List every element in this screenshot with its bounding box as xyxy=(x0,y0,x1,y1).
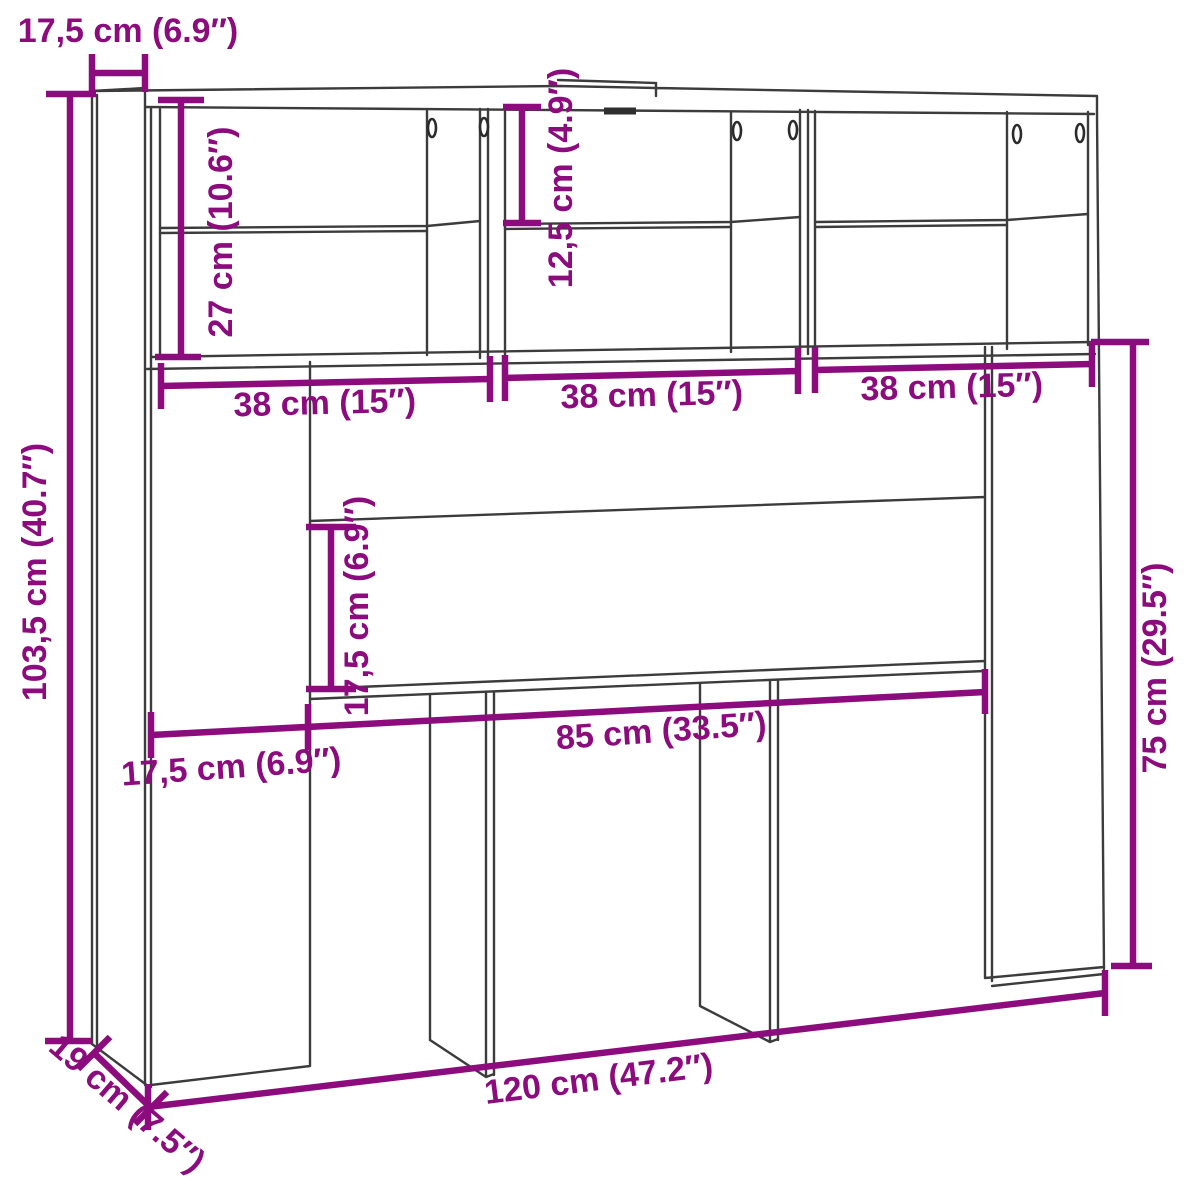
label-top-depth: 17,5 cm (6.9″) xyxy=(18,12,238,50)
label-shelf-spacing: 12,5 cm (4.9″) xyxy=(542,68,580,288)
screw-icon xyxy=(480,118,488,136)
right-outer-edge xyxy=(1097,114,1104,969)
screw-icon xyxy=(789,121,797,139)
left-side-panel xyxy=(92,88,151,1087)
compartment-shelves xyxy=(160,214,1088,233)
dim-line-total-width xyxy=(148,970,1105,1130)
label-total-height: 103,5 cm (40.7″) xyxy=(16,443,54,701)
screw-icon xyxy=(1076,124,1084,142)
screw-icon xyxy=(733,122,741,140)
screw-icon xyxy=(1013,125,1021,143)
label-compartment-width-left: 38 cm (15″) xyxy=(233,382,417,425)
diagram-svg: 17,5 cm (6.9″) 27 cm (10.6″) 12,5 cm (4.… xyxy=(0,0,1200,1200)
cabinet-outline xyxy=(92,80,1104,1087)
screw-icon xyxy=(428,119,436,137)
dim-line-shelf-spacing xyxy=(503,107,541,223)
label-lower-height: 75 cm (29.5″) xyxy=(1136,563,1174,774)
label-compartment-width-right: 38 cm (15″) xyxy=(860,366,1044,409)
hutch-dividers xyxy=(160,109,1088,358)
top-board xyxy=(92,80,1097,114)
label-compartment-width-middle: 38 cm (15″) xyxy=(560,374,744,417)
screw-hole-icons xyxy=(428,118,1084,143)
label-compartment-height: 27 cm (10.6″) xyxy=(202,127,240,338)
label-headboard-height: 17,5 cm (6.9″) xyxy=(338,496,376,716)
dim-line-top-depth xyxy=(92,54,145,92)
diagram-page: 17,5 cm (6.9″) 27 cm (10.6″) 12,5 cm (4.… xyxy=(0,0,1200,1200)
